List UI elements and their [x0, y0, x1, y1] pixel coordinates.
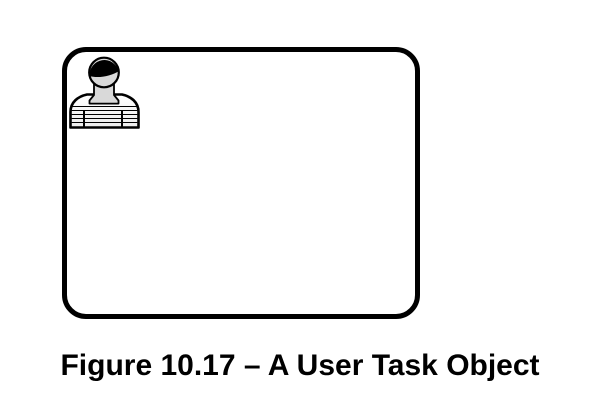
figure-caption: Figure 10.17 – A User Task Object — [0, 349, 600, 383]
user-icon — [69, 56, 140, 129]
figure-canvas: Figure 10.17 – A User Task Object — [0, 0, 600, 412]
